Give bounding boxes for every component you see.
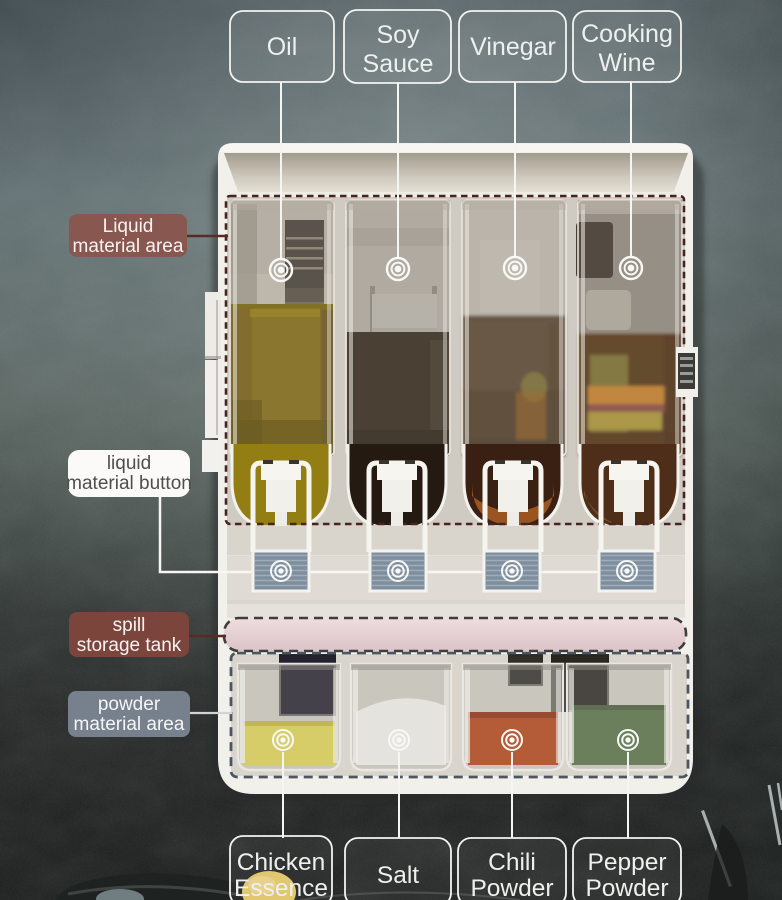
svg-text:Salt: Salt xyxy=(377,862,419,889)
svg-text:Oil: Oil xyxy=(267,33,298,61)
svg-text:material button: material button xyxy=(66,473,192,494)
svg-text:Vinegar: Vinegar xyxy=(470,33,556,61)
svg-text:Pepper: Pepper xyxy=(587,849,666,876)
svg-text:Soy: Soy xyxy=(376,21,420,49)
svg-text:Essence: Essence xyxy=(234,875,328,900)
svg-text:liquid: liquid xyxy=(107,453,151,474)
svg-text:spill: spill xyxy=(113,615,146,636)
svg-text:storage tank: storage tank xyxy=(77,635,182,656)
svg-text:Sauce: Sauce xyxy=(363,50,434,78)
svg-text:Chili: Chili xyxy=(488,849,536,876)
svg-text:Liquid: Liquid xyxy=(103,216,154,237)
svg-text:Wine: Wine xyxy=(599,49,656,77)
svg-text:Powder: Powder xyxy=(470,875,553,900)
svg-text:material area: material area xyxy=(74,714,185,735)
svg-text:material area: material area xyxy=(73,236,184,257)
svg-text:Cooking: Cooking xyxy=(581,20,673,48)
svg-text:Powder: Powder xyxy=(585,875,668,900)
svg-text:powder: powder xyxy=(98,694,161,715)
svg-text:Chicken: Chicken xyxy=(237,849,326,876)
